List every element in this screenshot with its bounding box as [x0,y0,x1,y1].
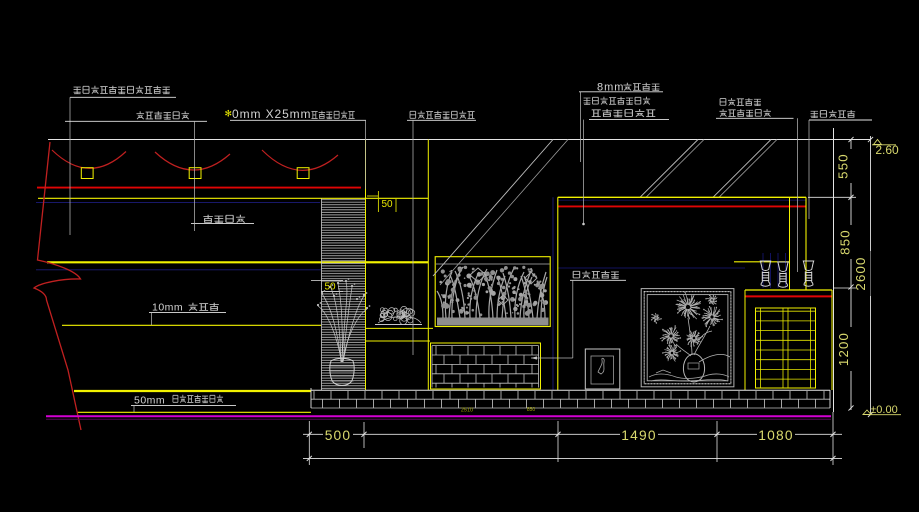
svg-text:2510: 2510 [461,408,473,414]
svg-text:50: 50 [381,199,393,210]
svg-text:500: 500 [325,428,352,443]
svg-text:850: 850 [527,407,536,413]
svg-text:1200: 1200 [836,332,851,366]
svg-text:±0.00: ±0.00 [870,404,897,416]
svg-text:850: 850 [838,229,853,255]
svg-text:2.60: 2.60 [875,143,899,157]
svg-text:0mm X25mm: 0mm X25mm [232,107,311,121]
svg-text:10mm: 10mm [152,302,183,314]
svg-text:✻: ✻ [225,109,233,119]
svg-text:50mm: 50mm [134,395,165,407]
svg-text:2600: 2600 [853,256,868,290]
svg-text:550: 550 [836,153,851,179]
svg-text:1490: 1490 [621,428,657,443]
svg-text:1080: 1080 [758,428,794,443]
